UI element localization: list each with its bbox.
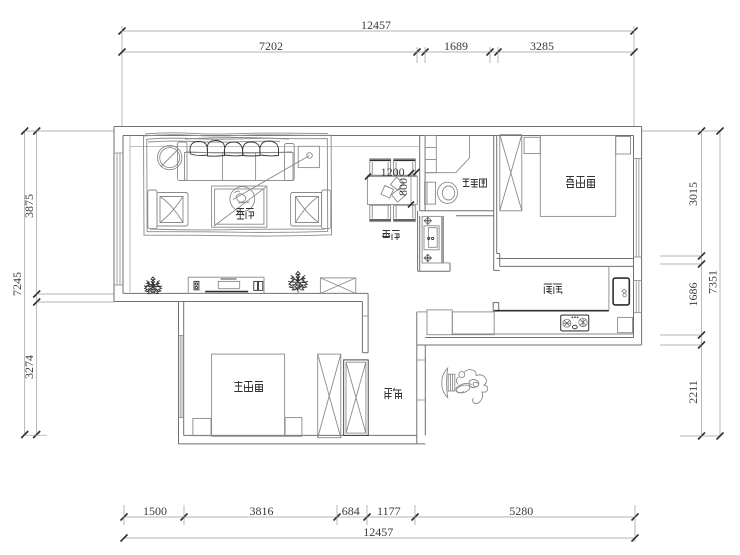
svg-text:3274: 3274 — [22, 355, 36, 379]
svg-text:684: 684 — [342, 504, 360, 518]
svg-text:5280: 5280 — [509, 504, 533, 518]
svg-text:1177: 1177 — [377, 504, 401, 518]
svg-text:12457: 12457 — [363, 525, 393, 539]
svg-text:1689: 1689 — [444, 39, 468, 53]
svg-text:7351: 7351 — [706, 270, 720, 294]
svg-text:3816: 3816 — [250, 504, 274, 518]
svg-text:1200: 1200 — [381, 165, 405, 179]
svg-text:1500: 1500 — [143, 504, 167, 518]
svg-text:3285: 3285 — [530, 39, 554, 53]
svg-text:2211: 2211 — [686, 380, 700, 404]
svg-text:3015: 3015 — [686, 182, 700, 206]
svg-text:7245: 7245 — [10, 272, 24, 296]
svg-text:800: 800 — [396, 178, 410, 196]
svg-text:12457: 12457 — [361, 18, 391, 32]
svg-text:1686: 1686 — [686, 283, 700, 307]
svg-text:3875: 3875 — [22, 194, 36, 218]
svg-text:7202: 7202 — [259, 39, 283, 53]
